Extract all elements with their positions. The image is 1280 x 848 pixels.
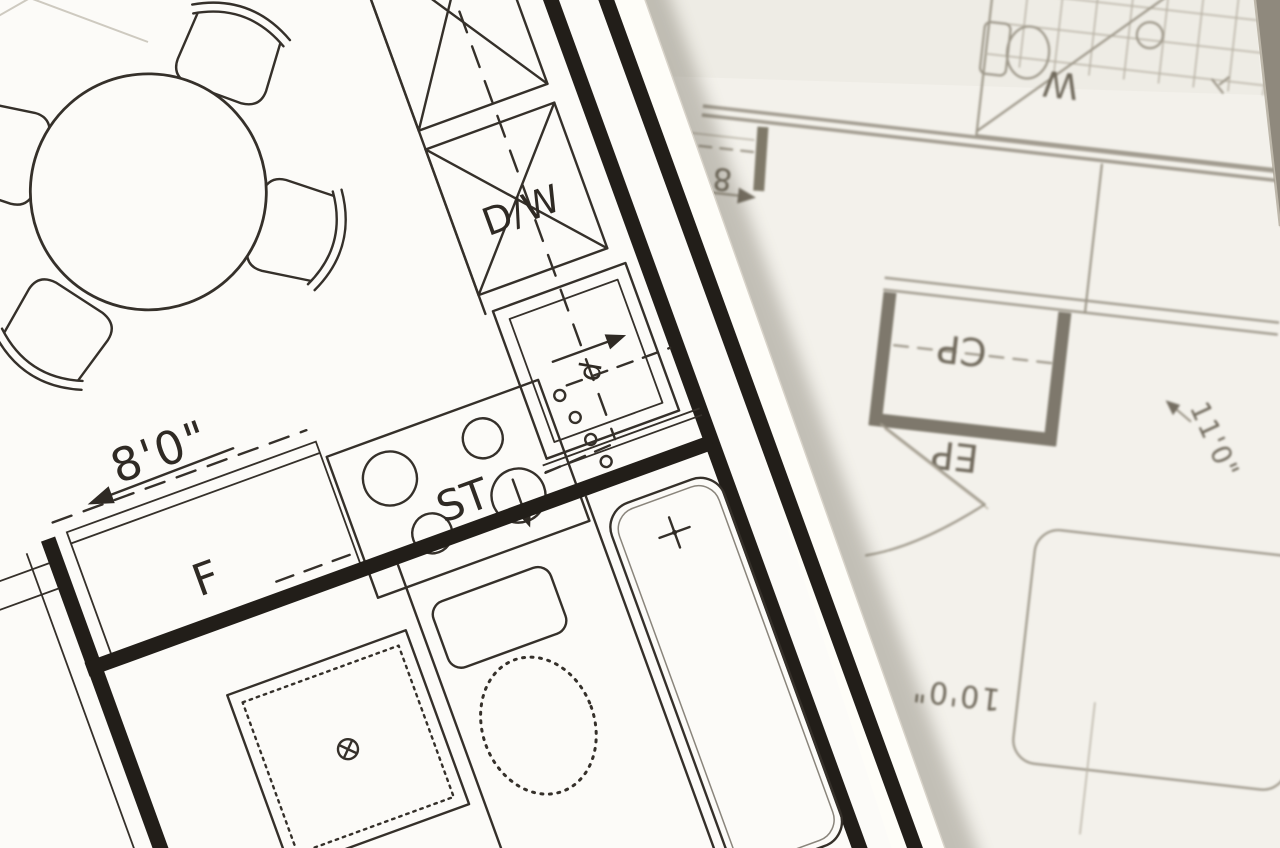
washer-label: W	[1041, 62, 1081, 107]
closet-cp-label: CP	[935, 325, 989, 374]
blueprint-photo: W 8'0"	[0, 0, 1280, 848]
wall-stub	[756, 127, 766, 191]
blueprint-scene: W 8'0"	[0, 0, 1280, 848]
entry-ep-label: EP	[929, 431, 981, 480]
